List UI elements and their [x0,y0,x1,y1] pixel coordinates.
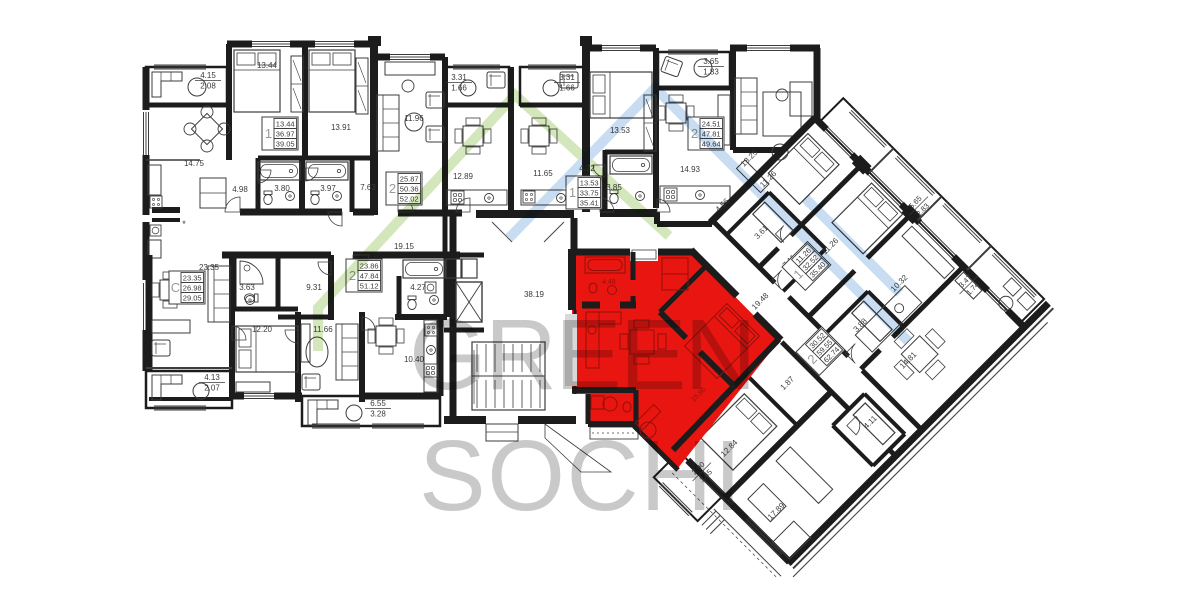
svg-text:29.05: 29.05 [183,294,202,303]
svg-text:3.97: 3.97 [320,184,336,193]
svg-text:11.96: 11.96 [404,114,424,123]
svg-text:3.31: 3.31 [451,73,467,82]
svg-text:12.89: 12.89 [453,172,474,181]
svg-text:1.83: 1.83 [703,68,719,77]
svg-text:SOCHI: SOCHI [419,420,743,532]
svg-text:3.28: 3.28 [370,410,386,419]
svg-text:4.98: 4.98 [232,185,248,194]
svg-text:GREEN: GREEN [409,299,755,411]
svg-text:13.44: 13.44 [276,120,295,129]
svg-text:3.31: 3.31 [559,73,575,82]
svg-text:14.75: 14.75 [184,159,205,168]
svg-text:1.66: 1.66 [451,84,467,93]
svg-text:3.65: 3.65 [703,57,719,66]
svg-text:38.19: 38.19 [524,290,545,299]
svg-text:36.97: 36.97 [276,130,295,139]
svg-text:13.44: 13.44 [257,61,278,70]
svg-text:6.55: 6.55 [370,399,386,408]
svg-text:14.93: 14.93 [680,165,701,174]
svg-text:23.35: 23.35 [183,274,202,283]
svg-text:19.15: 19.15 [394,242,415,251]
svg-text:1.66: 1.66 [559,84,575,93]
svg-text:9.31: 9.31 [306,283,322,292]
svg-text:3.63: 3.63 [239,283,255,292]
svg-text:4.48: 4.48 [602,279,616,286]
svg-text:11.65: 11.65 [533,169,553,178]
svg-text:2.08: 2.08 [200,82,216,91]
svg-text:50.36: 50.36 [400,185,419,194]
svg-text:7.63: 7.63 [360,183,376,192]
svg-text:*: * [182,219,186,229]
svg-text:25.87: 25.87 [400,175,419,184]
svg-text:13.91: 13.91 [331,123,352,132]
svg-text:1: 1 [265,126,272,141]
svg-text:4.13: 4.13 [204,373,220,382]
svg-text:C: C [171,280,180,295]
svg-text:3.80: 3.80 [274,184,290,193]
svg-text:12.20: 12.20 [252,325,273,334]
svg-text:51.12: 51.12 [360,282,379,291]
svg-text:2.07: 2.07 [204,384,220,393]
svg-text:33.75: 33.75 [580,189,599,198]
svg-text:24.51: 24.51 [702,120,721,129]
svg-text:4.27: 4.27 [410,283,426,292]
svg-text:1: 1 [569,185,576,200]
svg-text:39.05: 39.05 [276,140,295,149]
svg-text:2: 2 [389,181,396,196]
svg-text:35.41: 35.41 [580,199,599,208]
svg-text:26.98: 26.98 [183,284,202,293]
svg-text:4.15: 4.15 [200,71,216,80]
svg-text:47.84: 47.84 [360,272,379,281]
svg-text:13.53: 13.53 [580,179,599,188]
